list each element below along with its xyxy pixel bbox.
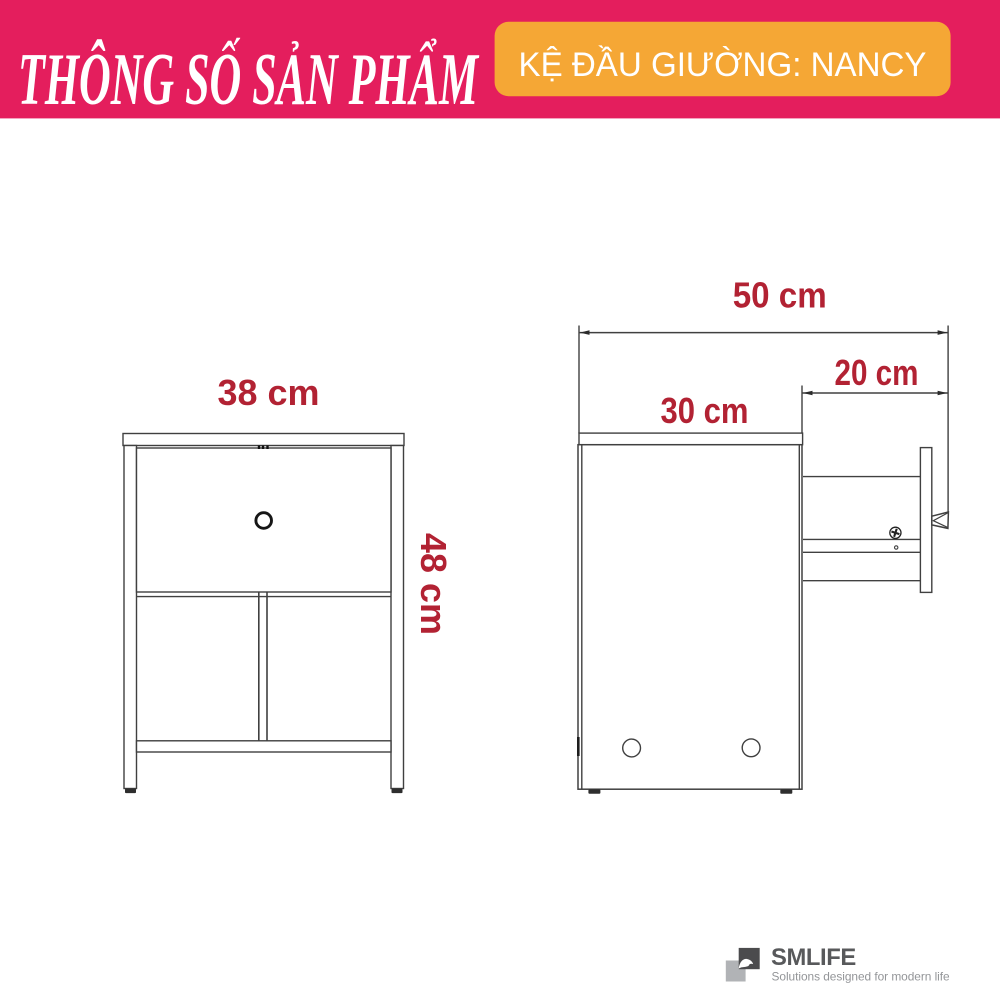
svg-text:Solutions designed for modern: Solutions designed for modern life (772, 970, 951, 984)
svg-text:30 cm: 30 cm (661, 390, 749, 431)
svg-text:38 cm: 38 cm (218, 372, 320, 413)
svg-text:SMLIFE: SMLIFE (771, 944, 856, 971)
svg-text:THÔNG SỐ SẢN PHẨM: THÔNG SỐ SẢN PHẨM (18, 38, 479, 121)
svg-text:50 cm: 50 cm (733, 275, 827, 316)
svg-text:48 cm: 48 cm (413, 533, 454, 635)
svg-text:KỆ ĐẦU GIƯỜNG: NANCY: KỆ ĐẦU GIƯỜNG: NANCY (519, 46, 927, 84)
svg-text:20 cm: 20 cm (835, 352, 919, 393)
